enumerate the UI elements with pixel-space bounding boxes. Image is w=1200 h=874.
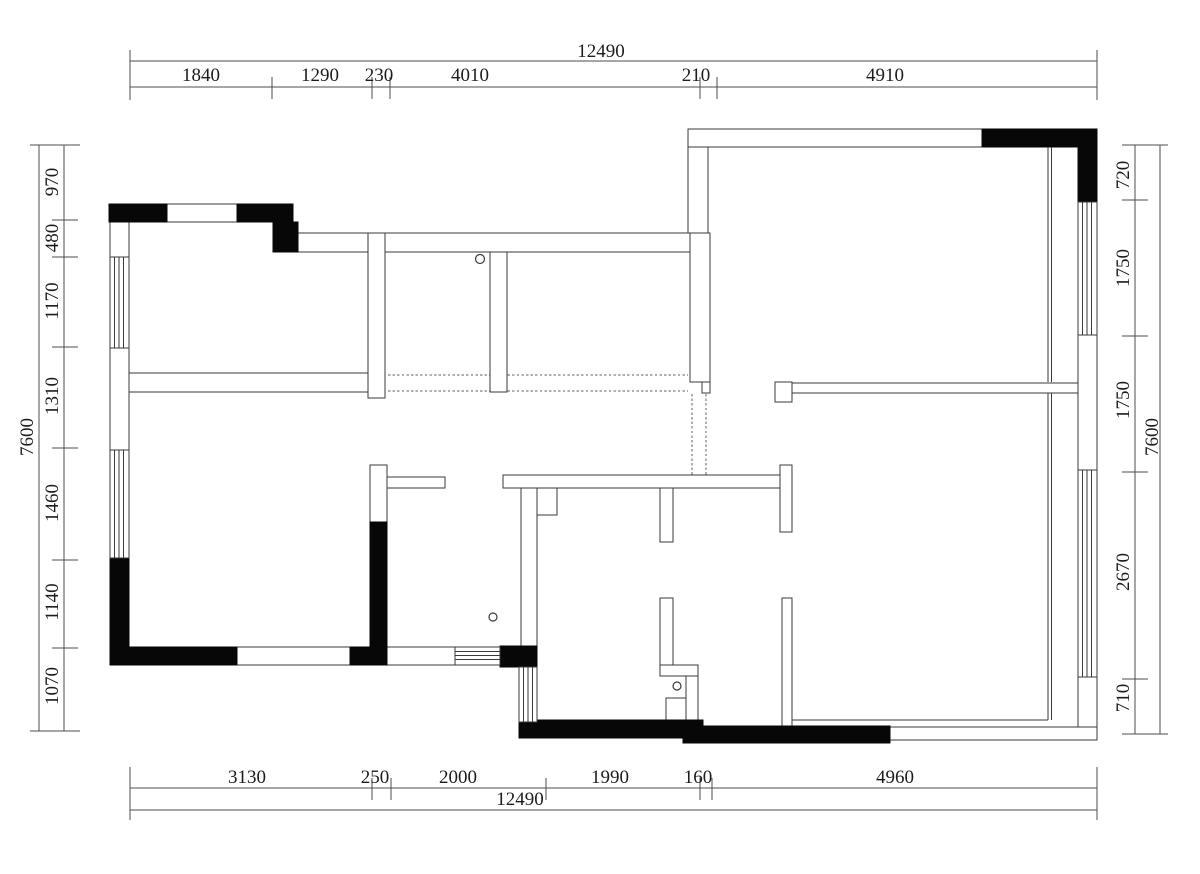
dim-bottom-seg-1: 250 xyxy=(361,767,390,788)
dim-bottom-seg-4: 160 xyxy=(684,767,713,788)
closet-divider-wall xyxy=(490,252,507,392)
dim-top-seg-3: 4010 xyxy=(451,65,489,86)
window-right-upper xyxy=(1078,202,1097,335)
dim-left-seg-6: 1070 xyxy=(42,667,63,705)
bottom-wall-opening xyxy=(237,647,350,665)
dim-left-seg-2: 1170 xyxy=(42,282,63,319)
dim-right-overall: 7600 xyxy=(1142,418,1163,456)
circle-symbol-kitchen xyxy=(489,613,497,621)
dim-right-seg-0: 720 xyxy=(1113,161,1134,190)
circle-symbol-closet xyxy=(476,255,485,264)
window-right-lower xyxy=(1078,470,1097,677)
hall-middle-wall xyxy=(129,373,368,392)
dimension-chain-left: 970 480 1170 1310 1460 1140 1070 7600 xyxy=(17,145,80,731)
circle-symbol-bath xyxy=(673,682,681,690)
dim-bottom-seg-2: 2000 xyxy=(439,767,477,788)
dim-left-seg-5: 1140 xyxy=(42,583,63,620)
dim-right-seg-2: 1750 xyxy=(1113,381,1134,419)
dim-top-seg-0: 1840 xyxy=(182,65,220,86)
floor-plan-drawing: 12490 1840 1290 230 4010 210 4910 3130 2… xyxy=(0,0,1200,874)
dashed-opening-lines xyxy=(388,375,706,477)
dim-bottom-overall: 12490 xyxy=(496,789,544,810)
dim-left-seg-3: 1310 xyxy=(42,377,63,415)
plumbing-shaft xyxy=(666,698,686,722)
dimension-chain-top: 12490 1840 1290 230 4010 210 4910 xyxy=(130,41,1097,100)
dim-left-seg-4: 1460 xyxy=(42,484,63,522)
bedroom1-right-wall xyxy=(368,233,385,398)
dim-bottom-seg-0: 3130 xyxy=(228,767,266,788)
window-left-upper xyxy=(110,257,129,348)
right-wing-top-wall xyxy=(688,129,982,147)
dim-right-seg-3: 2670 xyxy=(1113,553,1134,591)
dim-top-seg-5: 4910 xyxy=(866,65,904,86)
top-left-window-opening xyxy=(167,204,237,222)
windows xyxy=(110,202,1097,722)
kitchen-bath-wall xyxy=(503,475,792,488)
dim-bottom-seg-3: 1990 xyxy=(591,767,629,788)
dim-left-overall: 7600 xyxy=(17,418,38,456)
door-threshold-hatch xyxy=(455,647,500,665)
dim-top-overall: 12490 xyxy=(577,41,625,62)
dim-top-seg-4: 210 xyxy=(682,65,711,86)
dim-left-seg-1: 480 xyxy=(42,224,63,253)
hall-top-wall xyxy=(298,233,690,252)
dim-bottom-seg-5: 4960 xyxy=(876,767,914,788)
window-left-lower xyxy=(110,450,129,558)
dimension-chain-right: 720 1750 1750 2670 710 7600 xyxy=(1113,145,1168,734)
floor-plan-canvas: 12490 1840 1290 230 4010 210 4910 3130 2… xyxy=(0,0,1200,874)
dim-top-seg-1: 1290 xyxy=(301,65,339,86)
dimension-chain-bottom: 3130 250 2000 1990 160 4960 12490 xyxy=(130,767,1097,820)
dim-right-seg-4: 710 xyxy=(1113,684,1134,713)
window-bottom-strip xyxy=(519,667,537,722)
dim-top-seg-2: 230 xyxy=(365,65,394,86)
dim-left-seg-0: 970 xyxy=(42,168,63,197)
dim-right-seg-1: 1750 xyxy=(1113,249,1134,287)
bedroom2-bottom-wall xyxy=(792,383,1078,393)
interior-lines xyxy=(792,147,1052,720)
